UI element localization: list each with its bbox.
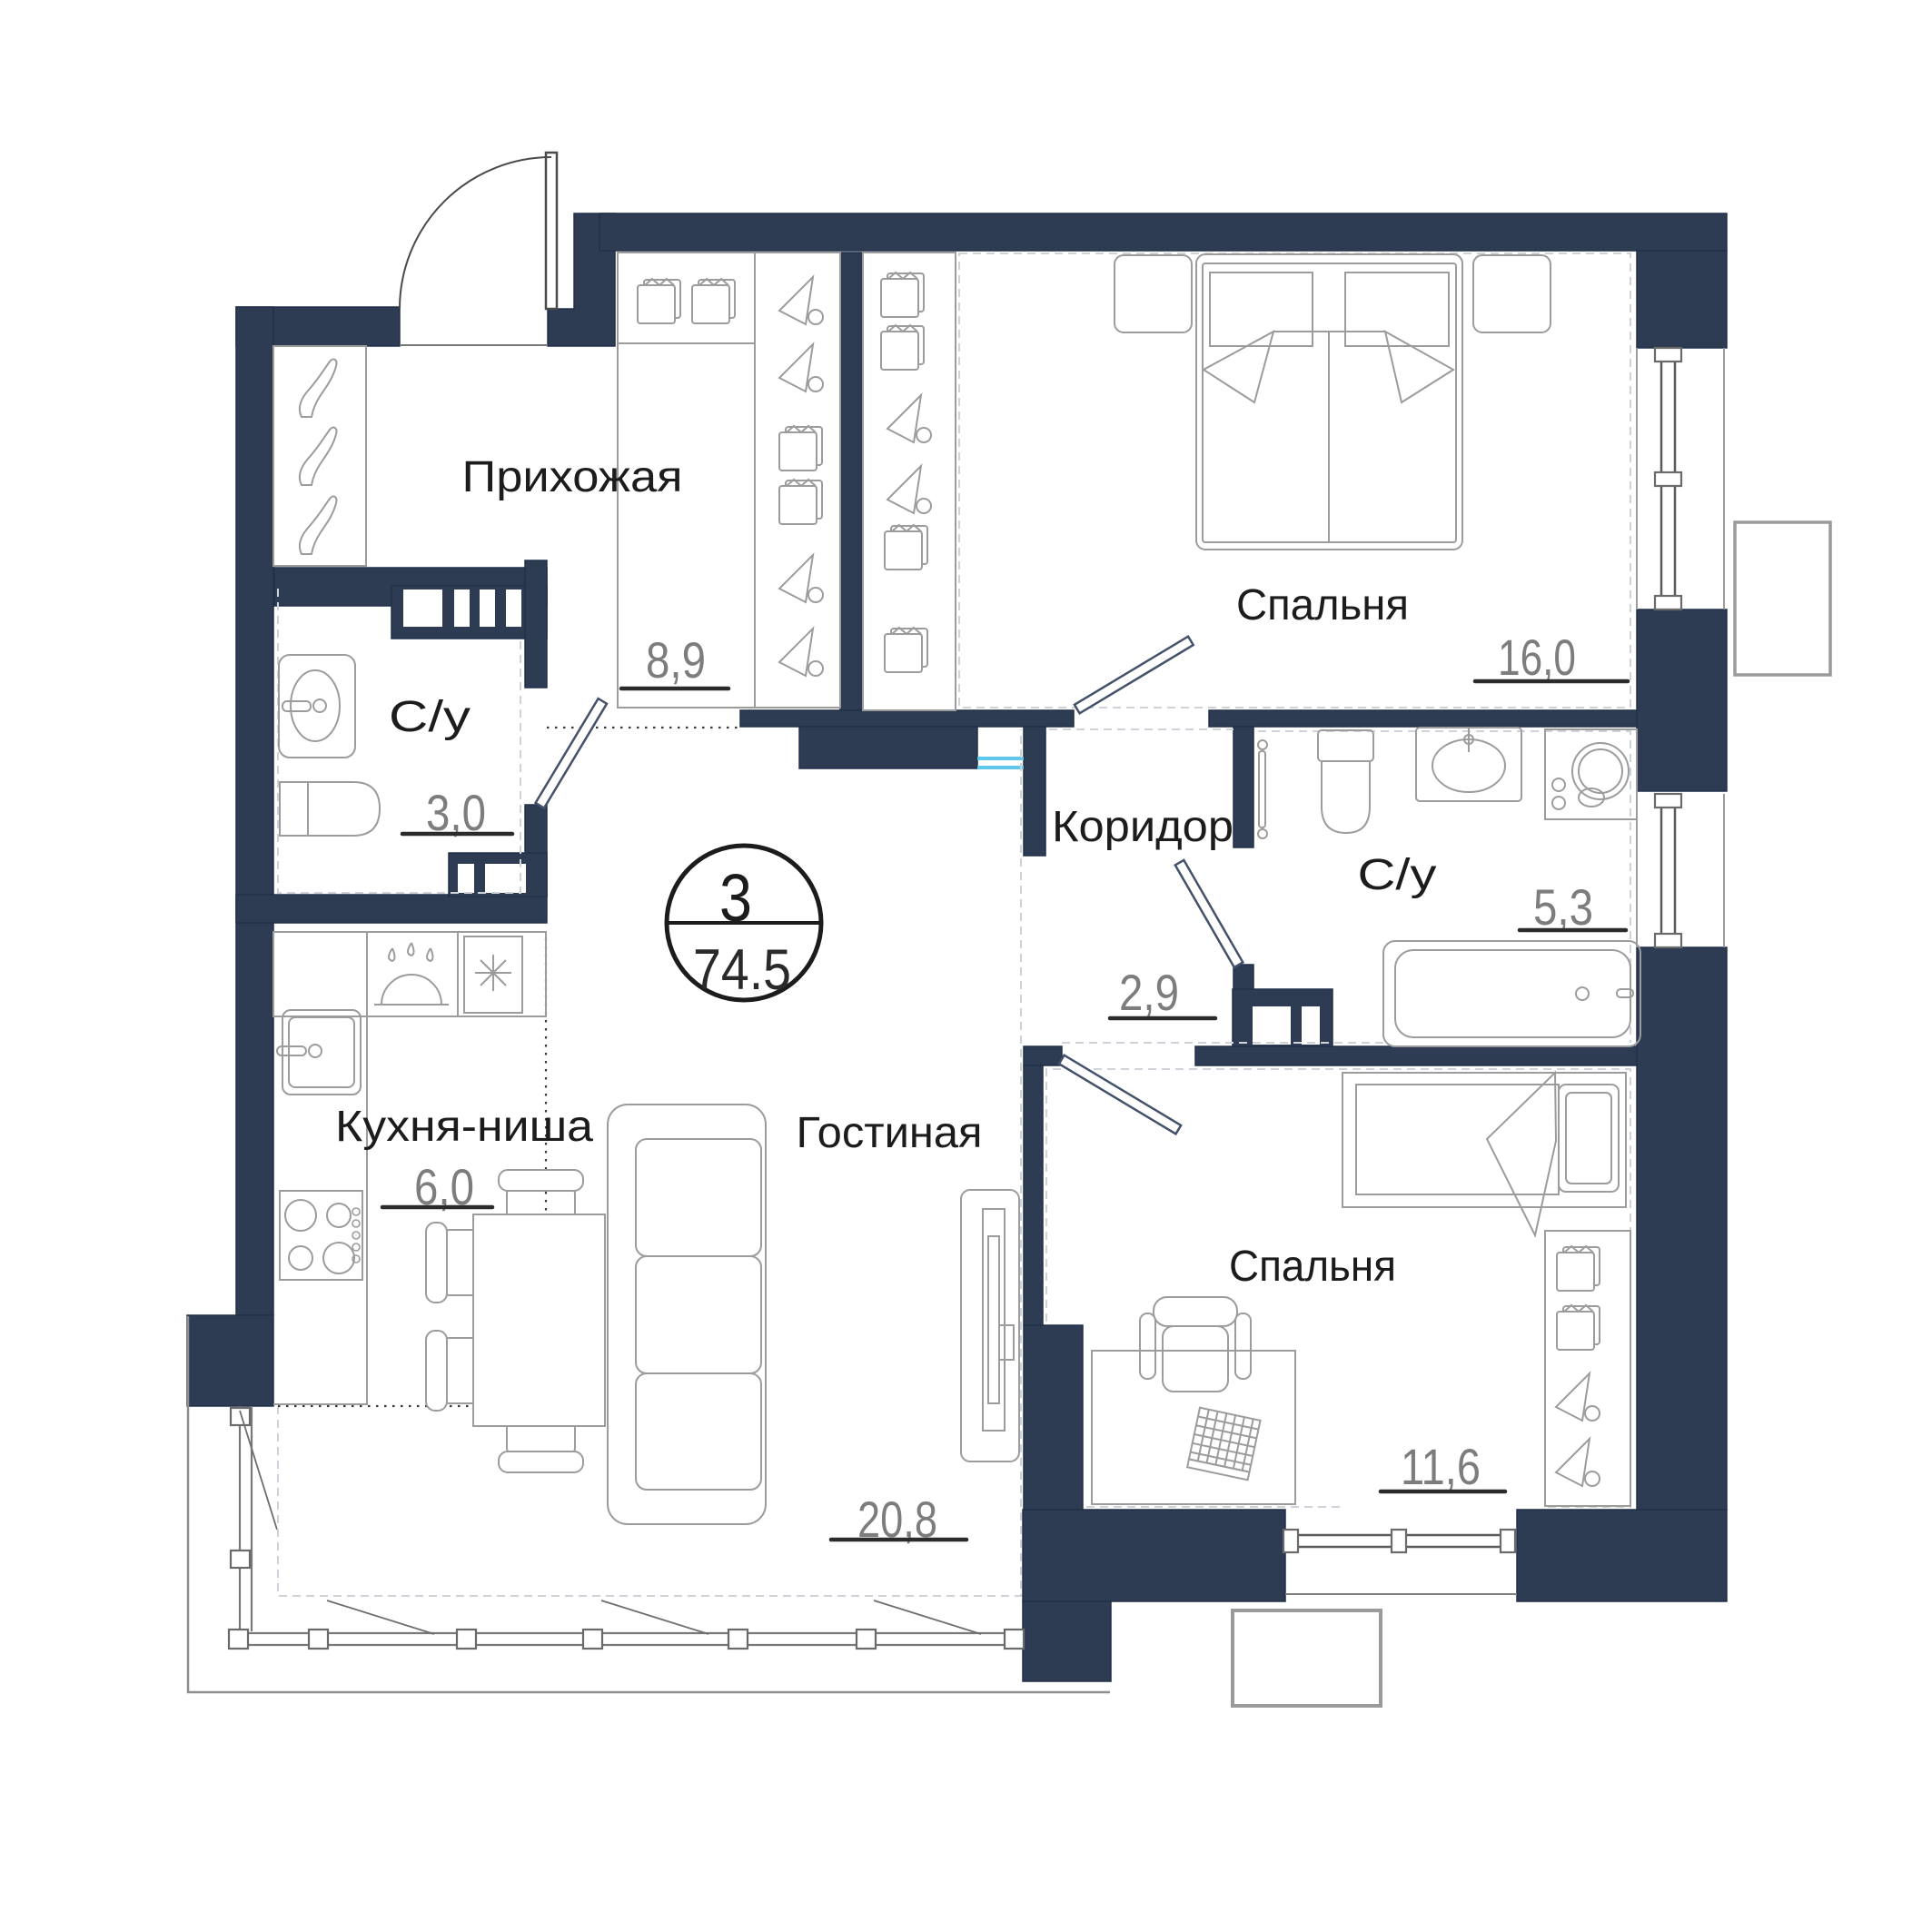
svg-text:Коридор: Коридор bbox=[1052, 803, 1234, 851]
svg-text:Гостиная: Гостиная bbox=[797, 1109, 983, 1157]
svg-text:2,9: 2,9 bbox=[1119, 964, 1179, 1021]
svg-text:С/у: С/у bbox=[1358, 851, 1437, 899]
svg-text:Кухня-ниша: Кухня-ниша bbox=[335, 1103, 593, 1151]
svg-text:С/у: С/у bbox=[389, 693, 471, 741]
svg-text:Прихожая: Прихожая bbox=[462, 453, 683, 501]
svg-text:Спальня: Спальня bbox=[1229, 1243, 1396, 1291]
svg-text:16,0: 16,0 bbox=[1498, 629, 1576, 686]
svg-text:8,9: 8,9 bbox=[646, 631, 706, 689]
svg-text:Спальня: Спальня bbox=[1236, 581, 1409, 629]
svg-text:11,6: 11,6 bbox=[1401, 1438, 1481, 1495]
svg-text:74.5: 74.5 bbox=[693, 938, 791, 1002]
svg-text:3: 3 bbox=[719, 860, 752, 936]
svg-text:5,3: 5,3 bbox=[1533, 878, 1593, 936]
